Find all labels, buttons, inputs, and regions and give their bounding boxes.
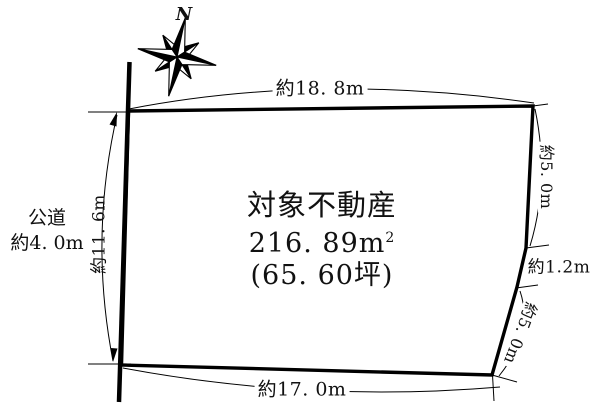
north-label: N <box>176 6 192 24</box>
parcel-title: 対象不動産 <box>247 189 397 222</box>
road-label: 公道 約4. 0m <box>8 206 86 256</box>
parcel-text-block: 対象不動産 216. 89m2 (65. 60坪) <box>247 189 397 292</box>
land-survey-diagram: N 約18. 8m 約17. 0m 約11. 6m 約5. 0m 約1.2m 約… <box>0 0 600 411</box>
dim-label-left-height: 約11. 6m <box>92 194 109 274</box>
dim-arrow-up <box>110 112 118 127</box>
parcel-area-tsubo: (65. 60坪) <box>247 260 397 292</box>
dim-label-right-middle: 約1.2m <box>528 260 591 277</box>
parcel-area-exponent: 2 <box>385 230 395 246</box>
road-label-line1: 公道 <box>8 206 86 231</box>
parcel-area-unit: m <box>359 228 386 259</box>
parcel-area-sqm: 216. 89m2 <box>247 222 397 260</box>
dim-label-right-upper: 約5. 0m <box>538 142 554 213</box>
road-label-line2: 約4. 0m <box>8 231 86 256</box>
parcel-area-value: 216. 89 <box>249 228 359 259</box>
dim-label-top-width: 約18. 8m <box>273 80 368 99</box>
dim-label-bottom-width: 約17. 0m <box>255 381 350 400</box>
